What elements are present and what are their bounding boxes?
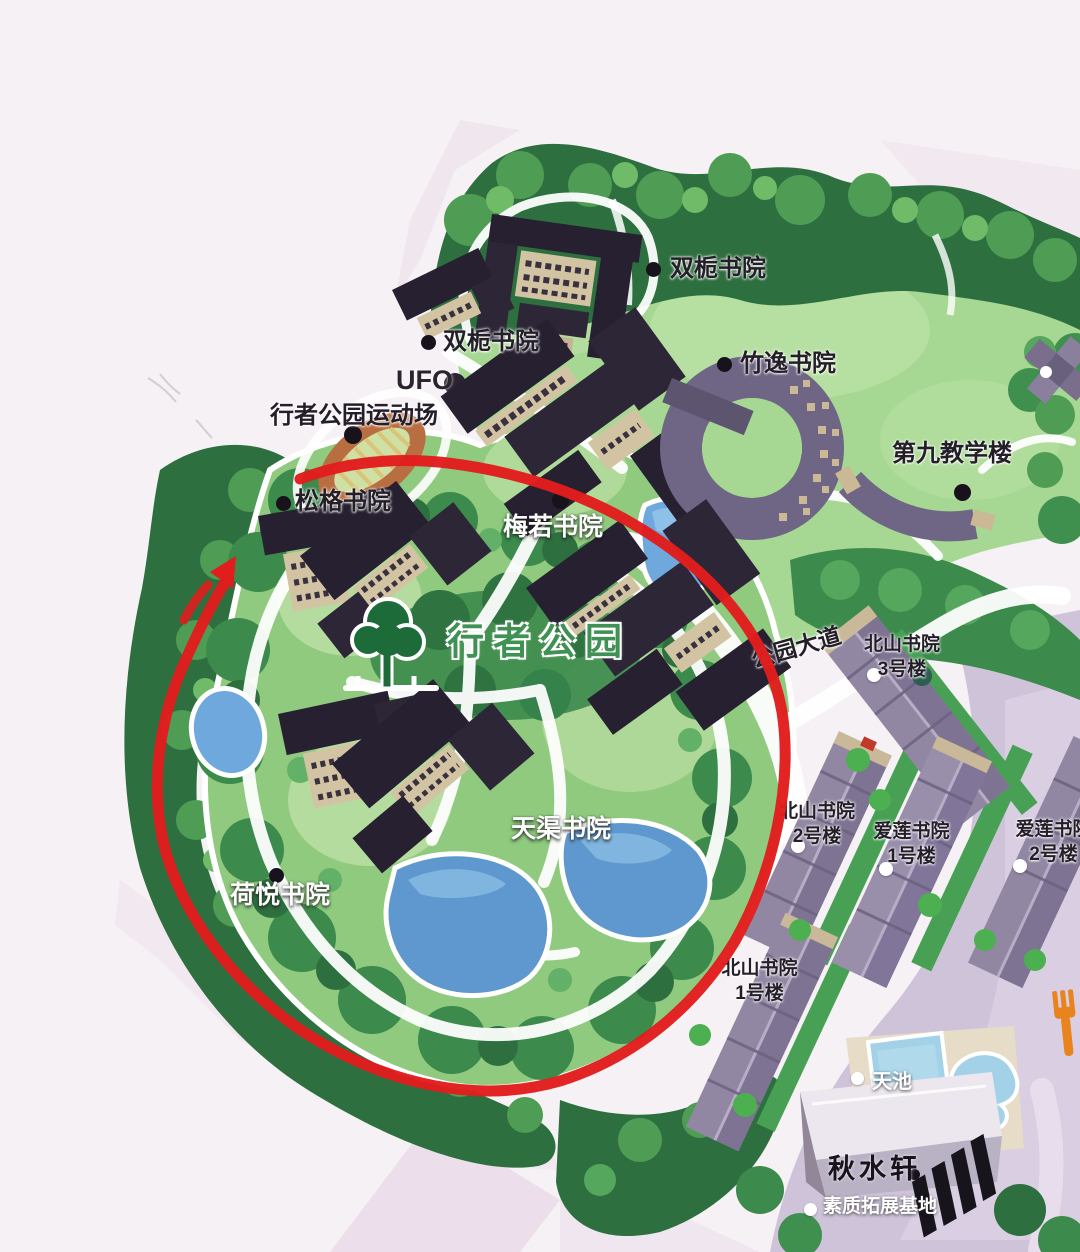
label-text: 行者公园运动场 [270, 402, 438, 429]
label-tianchi: 天池 [872, 1072, 912, 1094]
academy-name: 北山书院 [852, 633, 952, 658]
label-text: 天渠书院 [511, 815, 611, 843]
academy-name: 北山书院 [712, 957, 807, 982]
building-number: 1号楼 [712, 982, 807, 1007]
building-number: 3号楼 [852, 658, 952, 683]
label-songge: 松格书院 [295, 489, 391, 515]
label-text: 行者公园 [447, 621, 631, 662]
label-ninth-teaching: 第九教学楼 [892, 441, 1012, 467]
label-text: 竹逸书院 [740, 350, 836, 377]
label-text: UFO [396, 365, 453, 395]
academy-name: 北山书院 [772, 800, 862, 825]
campus-map: 双栀书院 竹逸书院 双栀书院 UFO 行者公园运动场 松格书院 梅若书院 第九教… [0, 0, 1080, 1252]
label-heyue: 荷悦书院 [230, 882, 330, 909]
label-beishan-1: 北山书院 1号楼 [712, 957, 807, 1006]
label-meiruo: 梅若书院 [503, 514, 603, 541]
building-number: 2号楼 [772, 825, 862, 850]
building-number: 1号楼 [864, 845, 959, 870]
label-park-avenue: 公园大道 [749, 623, 844, 672]
label-text: 天池 [872, 1071, 912, 1093]
label-suzhi-base: 素质拓展基地 [823, 1197, 937, 1218]
label-text: 梅若书院 [503, 513, 603, 541]
building-number: 2号楼 [1006, 843, 1080, 868]
label-text: 公园大道 [748, 622, 844, 672]
academy-name: 爱莲书院 [864, 820, 959, 845]
label-tianqu: 天渠书院 [511, 816, 611, 843]
label-beishan-2: 北山书院 2号楼 [772, 800, 862, 849]
label-text: 第九教学楼 [892, 440, 1012, 467]
label-text: 秋水轩 [828, 1154, 921, 1184]
label-shuangzhi-top: 双栀书院 [670, 256, 766, 282]
map-labels: 双栀书院 竹逸书院 双栀书院 UFO 行者公园运动场 松格书院 梅若书院 第九教… [0, 0, 1080, 1252]
label-text: 荷悦书院 [230, 881, 330, 909]
label-ailian-1: 爱莲书院 1号楼 [864, 820, 959, 869]
label-sports-field: 行者公园运动场 [270, 403, 438, 429]
label-zhuyi: 竹逸书院 [740, 351, 836, 377]
label-qiushui: 秋水轩 [828, 1155, 921, 1184]
academy-name: 爱莲书院 [1006, 818, 1080, 843]
label-beishan-3: 北山书院 3号楼 [852, 633, 952, 682]
label-ailian-2: 爱莲书院 2号楼 [1006, 818, 1080, 867]
label-text: 双栀书院 [443, 328, 539, 355]
label-ufo: UFO [396, 366, 453, 395]
label-shuangzhi-west: 双栀书院 [443, 329, 539, 355]
label-text: 双栀书院 [670, 255, 766, 282]
label-text: 素质拓展基地 [823, 1196, 937, 1217]
label-text: 松格书院 [295, 488, 391, 515]
label-walker-park: 行者公园 [447, 622, 631, 662]
